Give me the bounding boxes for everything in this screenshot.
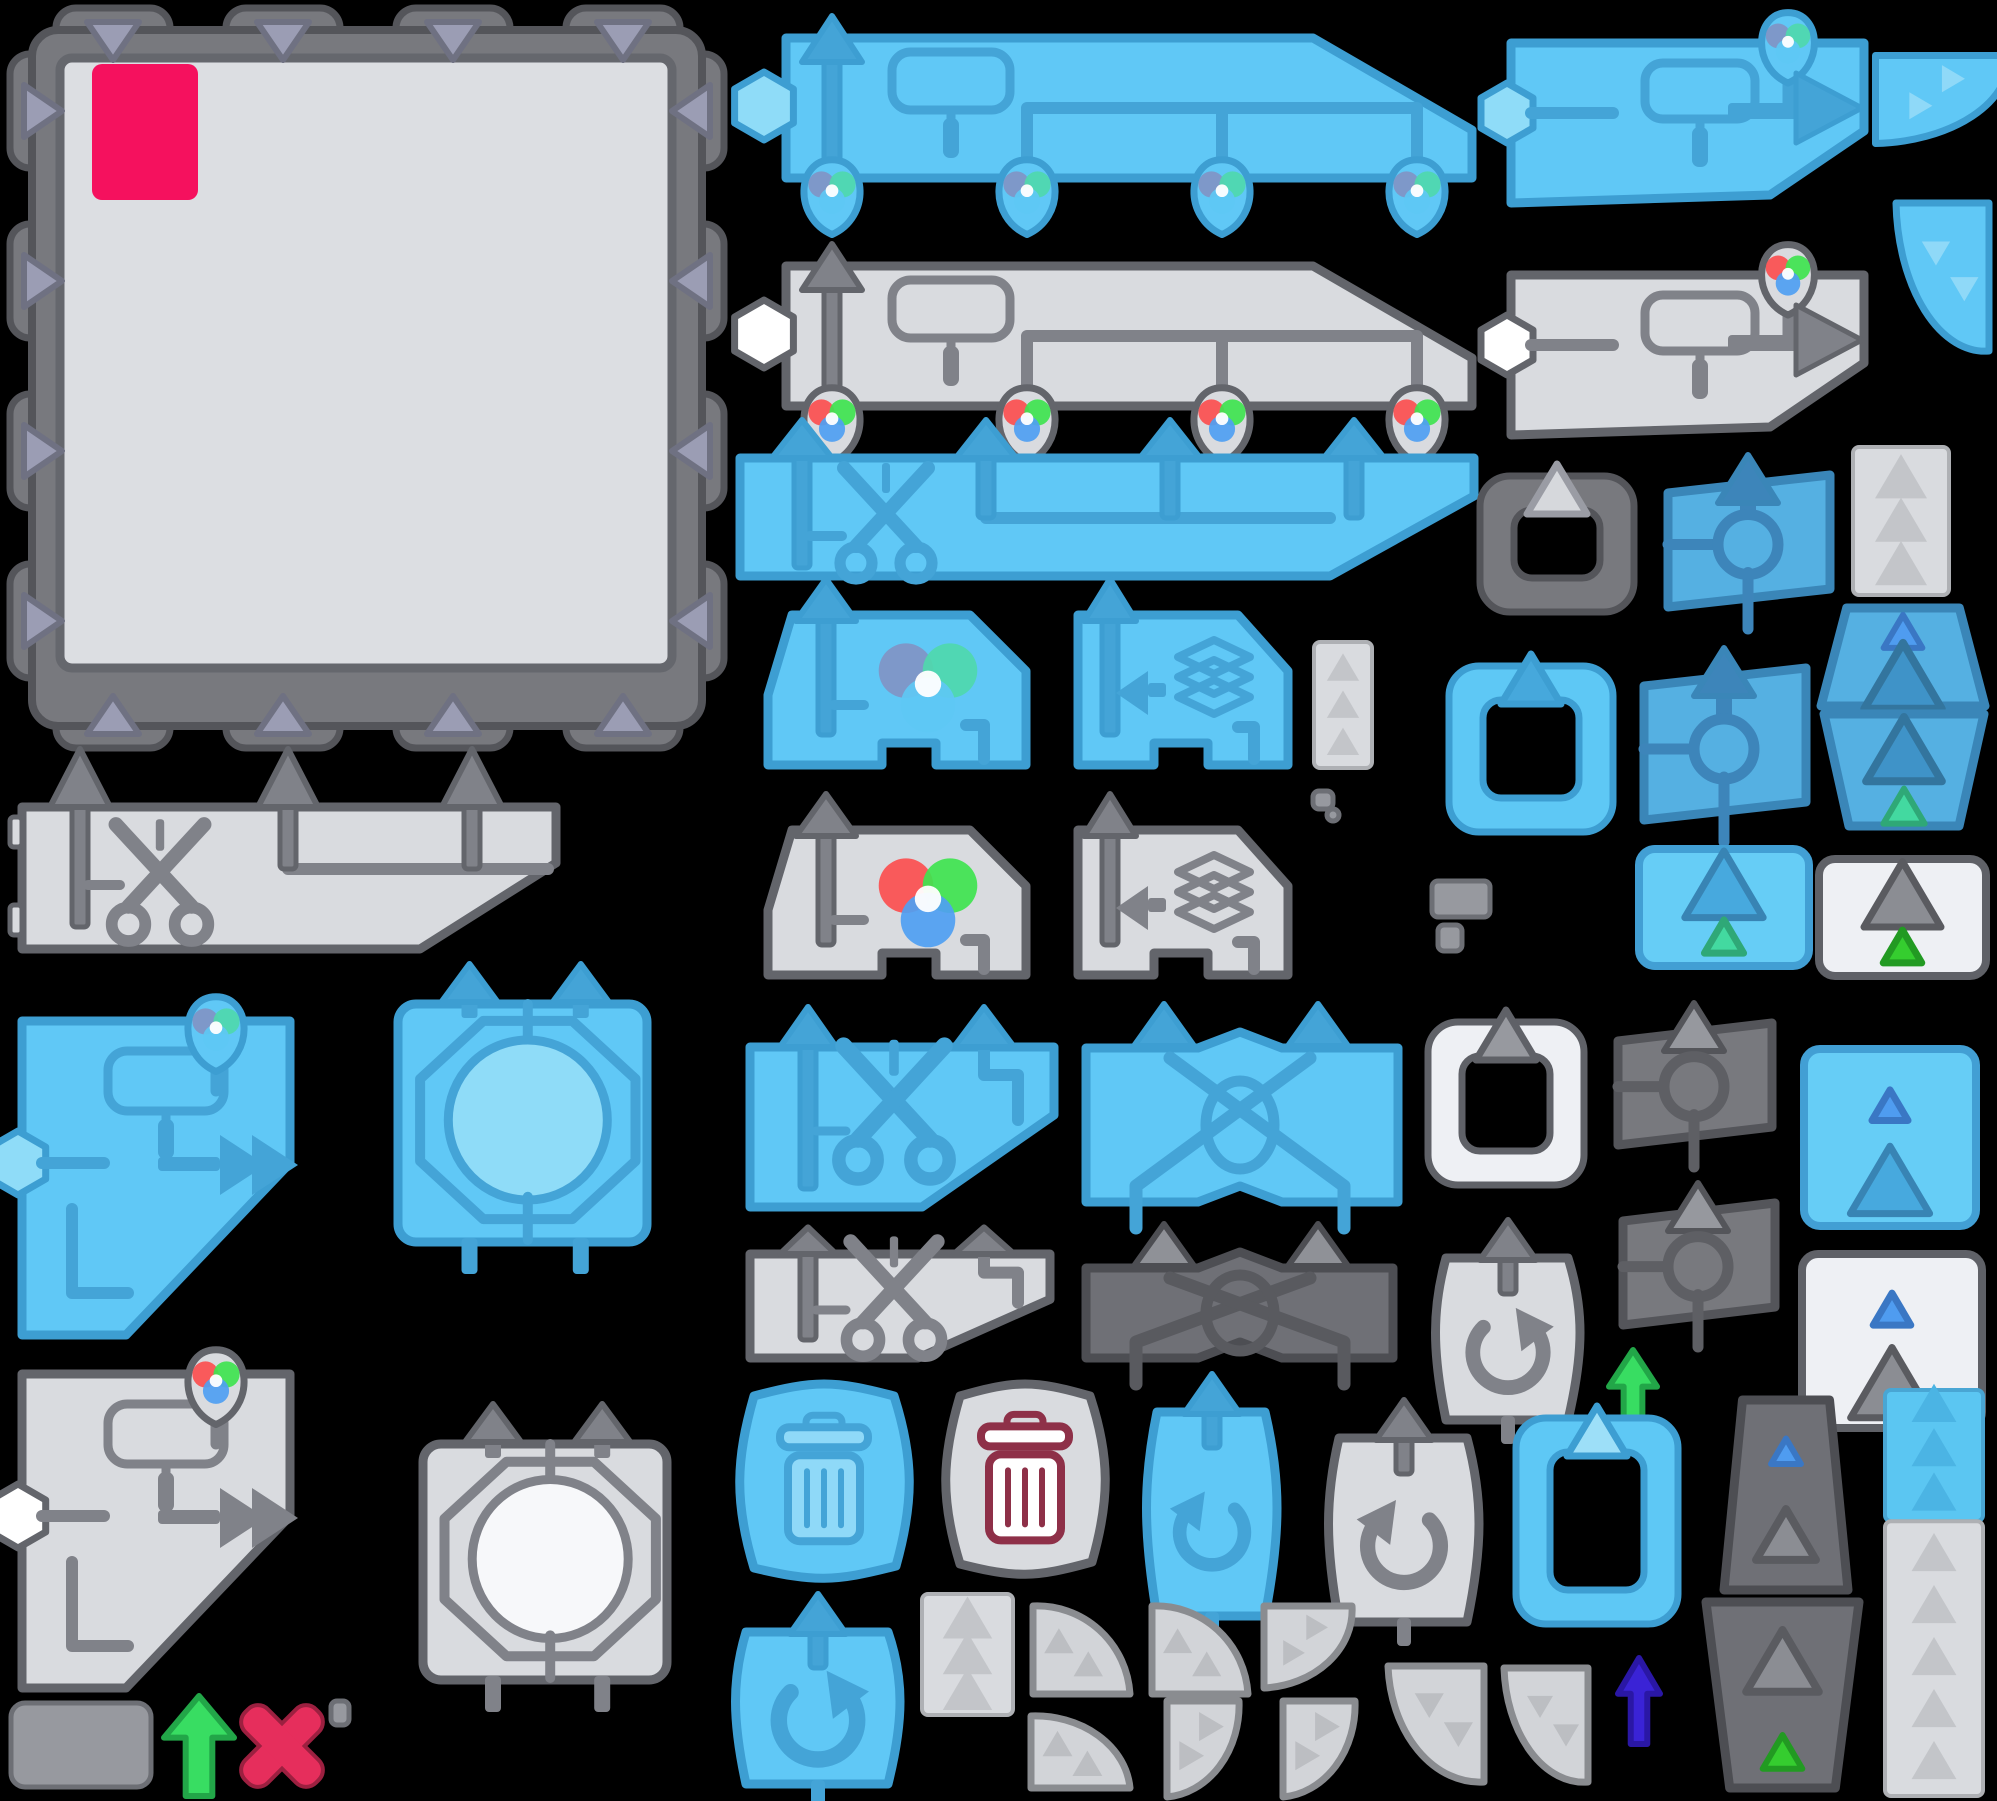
sprite-trap-dark-bottom [1700, 1600, 1865, 1796]
sprite-curve-gray-b1 [1023, 1702, 1138, 1796]
painter-gray-graphic [1495, 245, 1880, 440]
sprite-stacker-blue [1048, 575, 1290, 775]
trash-gray-graphic [930, 1372, 1120, 1584]
sprite-panel-white-green [1815, 855, 1990, 980]
sprite-curve-blue-2 [1888, 195, 1997, 365]
sprite-reader-blue-small [1650, 447, 1846, 615]
sprite-frame-blue [1441, 640, 1621, 842]
puzzle-board-graphic [8, 6, 726, 750]
swapper-dark-graphic [1072, 1222, 1407, 1368]
reader-blue-large-graphic [1626, 640, 1822, 828]
belt-strip-gray-2-graphic [920, 1592, 1015, 1717]
sprite-octagon-piece-blue [390, 960, 655, 1280]
sprite-mixer-blue [730, 575, 1038, 775]
sprite-belt-strip-gray-small [1312, 640, 1374, 770]
sprite-red-cross [242, 1704, 322, 1788]
curve-gray-b3-graphic [1266, 1702, 1378, 1796]
sprite-clipboard-frame-dark [1472, 450, 1642, 622]
painter-big-blue-graphic [8, 995, 304, 1340]
sprite-curve-gray-a3 [1262, 1592, 1360, 1702]
mixer-gray-graphic [730, 790, 1038, 985]
green-arrow-bottom-graphic [162, 1694, 236, 1798]
sprite-cutter-strip-gray [8, 745, 570, 957]
trap-dark-bottom-graphic [1700, 1600, 1865, 1796]
sprite-reader-blue-large [1626, 640, 1822, 828]
panel-white-green-graphic [1815, 855, 1990, 980]
curve-gray-b1-graphic [1023, 1702, 1138, 1796]
sprite-painter-big-blue [8, 995, 304, 1340]
sprite-stacker-gray [1048, 790, 1290, 985]
rotator-blue-cw-graphic [720, 1592, 916, 1798]
sprite-curve-gray-b5 [1496, 1660, 1596, 1796]
sprite-curve-blue-1 [1893, 22, 1997, 177]
stacker-blue-graphic [1048, 575, 1290, 775]
arrow-indigo-graphic [1616, 1656, 1662, 1746]
sprite-trapezoid-blue-top [1815, 600, 1991, 708]
curve-gray-a1-graphic [1025, 1592, 1138, 1702]
sprite-bit-3 [1431, 880, 1491, 918]
sprite-trash-gray [930, 1372, 1120, 1584]
curve-blue-1-graphic [1893, 22, 1997, 177]
gray-plate-graphic [10, 1702, 152, 1788]
sprite-reader-dark-1 [1600, 995, 1788, 1153]
stacker-gray-graphic [1048, 790, 1290, 985]
reader-dark-2-graphic [1605, 1175, 1791, 1333]
sprite-curve-gray-b2 [1150, 1702, 1262, 1796]
belt-strip-blue-gray-graphic [1883, 1388, 1985, 1798]
sprite-curve-gray-b4 [1380, 1658, 1492, 1796]
half-cutter-blue-graphic [732, 1005, 1072, 1215]
reader-dark-1-graphic [1600, 995, 1788, 1153]
painter-big-gray-graphic [8, 1348, 304, 1693]
curve-gray-a2-graphic [1144, 1592, 1256, 1702]
sprite-octagon-piece-white [415, 1400, 675, 1718]
half-cutter-gray-graphic [732, 1226, 1068, 1366]
cutter-strip-gray-graphic [8, 745, 570, 957]
paint-machine-gray-graphic [740, 238, 1488, 413]
trapezoid-blue-bottom-graphic [1818, 712, 1990, 834]
sprite-paint-machine-blue [740, 10, 1488, 228]
sprite-arrow-indigo [1616, 1656, 1662, 1746]
trapezoid-blue-top-graphic [1815, 600, 1991, 708]
sprite-mixer-gray [730, 790, 1038, 985]
sprite-frame-blue-paste [1508, 1392, 1686, 1634]
red-cross-graphic [242, 1704, 322, 1788]
sprite-painter-blue [1495, 13, 1880, 213]
sprite-half-cutter-blue [732, 1005, 1072, 1215]
sprite-curve-gray-a1 [1025, 1592, 1138, 1702]
sprite-reader-dark-2 [1605, 1175, 1791, 1333]
mixer-blue-graphic [730, 575, 1038, 775]
sprite-bit-2 [1326, 808, 1340, 822]
sprite-belt-strip-gray-1 [1851, 445, 1951, 597]
octagon-piece-blue-graphic [390, 960, 655, 1280]
sprite-bit-4 [1437, 924, 1463, 952]
clipboard-frame-dark-graphic [1472, 450, 1642, 622]
sprite-paint-machine-gray [740, 238, 1488, 413]
sprite-panel-blue-tris [1800, 1045, 1980, 1230]
sprite-swapper-dark [1072, 1222, 1407, 1368]
painter-blue-graphic [1495, 13, 1880, 213]
curve-gray-b4-graphic [1380, 1658, 1492, 1796]
sprite-panel-blue-green [1635, 845, 1813, 970]
sprite-green-arrow-bottom [162, 1694, 236, 1798]
bit-3-graphic [1431, 880, 1491, 918]
frame-blue-paste-graphic [1508, 1392, 1686, 1634]
sprite-belt-strip-gray-2 [920, 1592, 1015, 1717]
curve-gray-a3-graphic [1262, 1592, 1360, 1702]
panel-blue-green-graphic [1635, 845, 1813, 970]
trash-blue-graphic [724, 1372, 924, 1588]
sprite-swapper-blue [1072, 1002, 1412, 1212]
sprite-curve-gray-a2 [1144, 1592, 1256, 1702]
sprite-painter-big-gray [8, 1348, 304, 1693]
curve-gray-b2-graphic [1150, 1702, 1262, 1796]
curve-blue-2-graphic [1888, 195, 1997, 365]
bit-4-graphic [1437, 924, 1463, 952]
sprite-trash-blue [724, 1372, 924, 1588]
sprite-bit-5 [330, 1700, 350, 1726]
bit-2-graphic [1326, 808, 1340, 822]
swapper-blue-graphic [1072, 1002, 1412, 1212]
sprite-painter-gray [1495, 245, 1880, 440]
curve-gray-b5-graphic [1496, 1660, 1596, 1796]
sprite-rotator-blue-cw [720, 1592, 916, 1798]
frame-blue-graphic [1441, 640, 1621, 842]
sprite-frame-white [1420, 996, 1592, 1195]
panel-blue-tris-graphic [1800, 1045, 1980, 1230]
sprite-atlas [0, 0, 1997, 1801]
sprite-curve-gray-b3 [1266, 1702, 1378, 1796]
frame-white-graphic [1420, 996, 1592, 1195]
sprite-puzzle-board [8, 6, 726, 750]
sprite-half-cutter-gray [732, 1226, 1068, 1366]
reader-blue-small-graphic [1650, 447, 1846, 615]
octagon-piece-white-graphic [415, 1400, 675, 1718]
paint-machine-blue-graphic [740, 10, 1488, 228]
belt-strip-gray-small-graphic [1312, 640, 1374, 770]
bit-5-graphic [330, 1700, 350, 1726]
sprite-cutter-long-blue [720, 418, 1490, 590]
trap-dark-top-graphic [1718, 1392, 1854, 1592]
sprite-belt-strip-blue-gray [1883, 1388, 1985, 1798]
sprite-gray-plate [10, 1702, 152, 1788]
sprite-trap-dark-top [1718, 1392, 1854, 1592]
belt-strip-gray-1-graphic [1851, 445, 1951, 597]
sprite-trapezoid-blue-bottom [1818, 712, 1990, 834]
cutter-long-blue-graphic [720, 418, 1490, 590]
